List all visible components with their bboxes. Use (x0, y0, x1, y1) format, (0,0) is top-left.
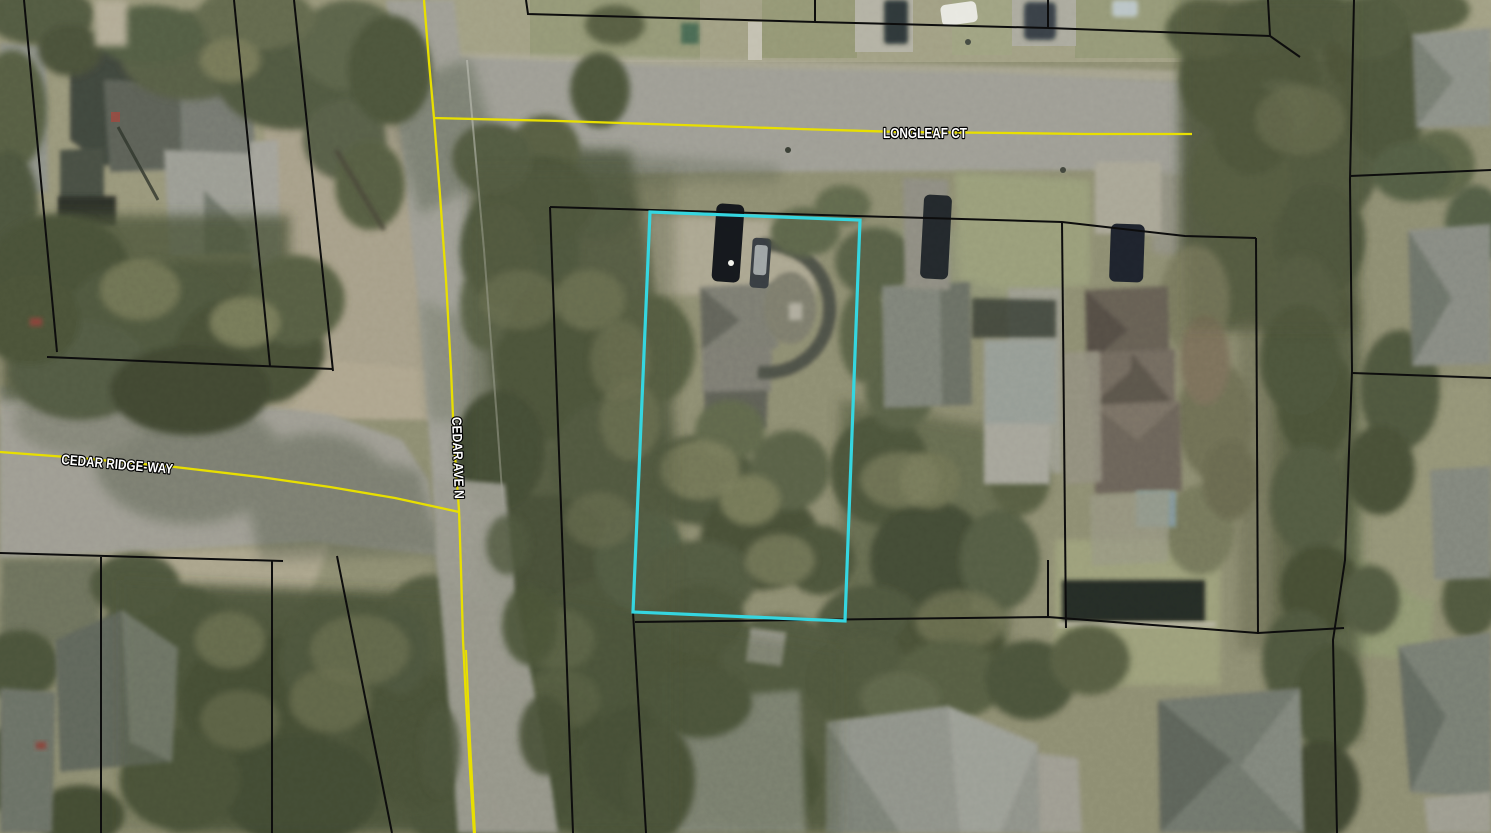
svg-text:CEDAR AVE N: CEDAR AVE N (449, 417, 467, 499)
svg-text:LONGLEAF CT: LONGLEAF CT (883, 126, 967, 142)
